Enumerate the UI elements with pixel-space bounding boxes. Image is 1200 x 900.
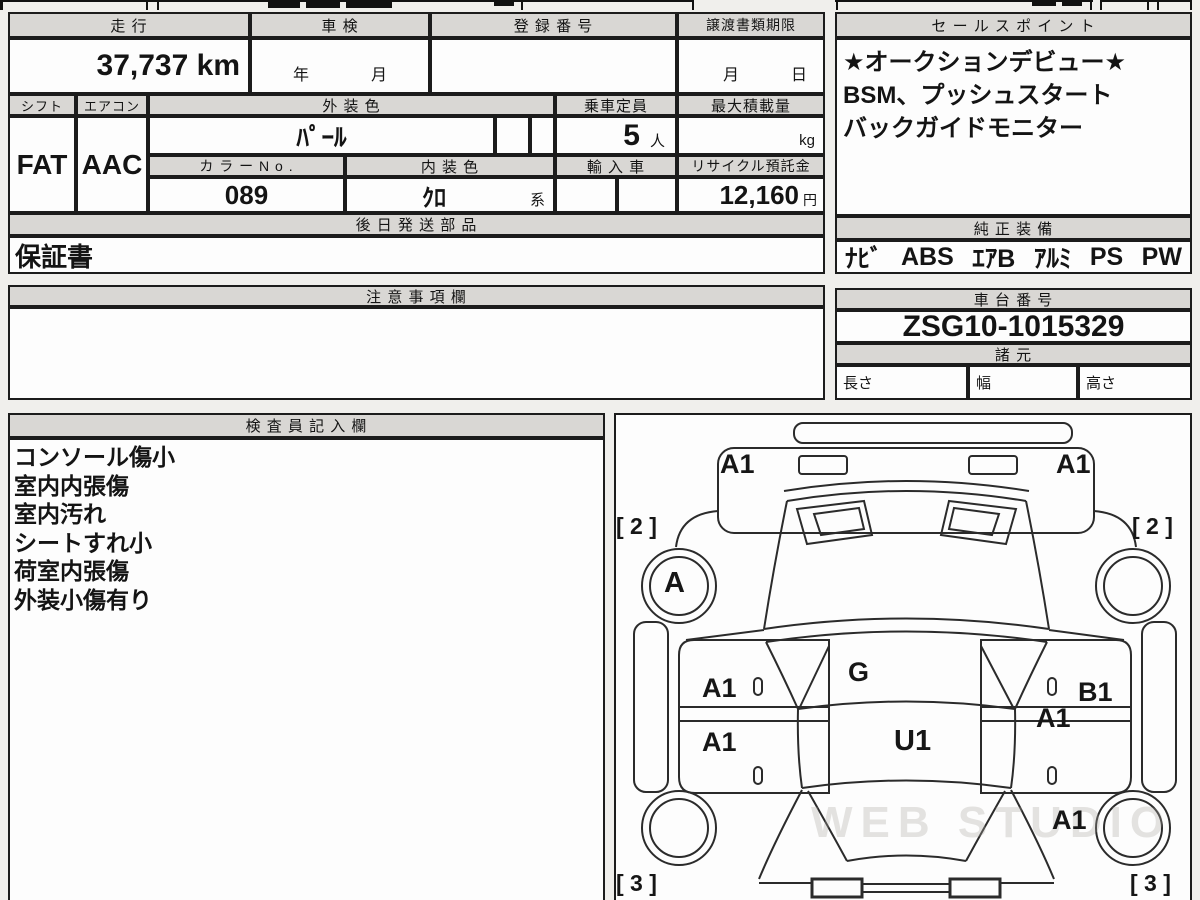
inspection-month-label: 月: [371, 61, 387, 85]
later-parts-value: 保証書: [8, 236, 825, 274]
max-load-unit: kg: [799, 132, 815, 149]
damage-label-front-door-right-2: A1: [1036, 703, 1071, 734]
exterior-color-sub-cell-2: [530, 116, 555, 155]
equipment-item: ｱﾙﾐ: [1034, 239, 1072, 275]
import-car-header: 輸 入 車: [555, 155, 677, 177]
transfer-day-label: 日: [791, 61, 807, 85]
exterior-color-sub-cell-1: [495, 116, 530, 155]
watermark: WEB STUDIO: [811, 798, 1172, 848]
inspection-value: 年 月: [250, 38, 430, 94]
mileage-header: 走 行: [8, 12, 250, 38]
capacity-number: 5: [623, 119, 640, 153]
sales-point-line: バックガイドモニター: [843, 112, 1184, 145]
capacity-unit: 人: [650, 120, 665, 151]
damage-label-front-bumper-left: A1: [720, 449, 755, 480]
equipment-item: ﾅﾋﾞ: [845, 239, 883, 275]
shift-value: FAT: [8, 116, 76, 213]
recycle-deposit-header: リサイクル預託金: [677, 155, 825, 177]
color-no-value: 089: [148, 177, 345, 213]
auction-sheet: 走 行 車 検 登 録 番 号 譲渡書類期限 37,737 km 年 月 月 日…: [0, 0, 1200, 900]
equipment-value: ﾅﾋﾞ ABS ｴｱB ｱﾙﾐ PS PW: [835, 240, 1192, 274]
transfer-deadline-value: 月 日: [677, 38, 825, 94]
inspector-note-line: シートすれ小: [14, 529, 599, 558]
inspector-note-line: 室内汚れ: [14, 500, 599, 529]
mileage-value: 37,737 km: [8, 38, 250, 94]
notes-box: [8, 307, 825, 400]
aircon-header: エアコン: [76, 94, 148, 116]
sales-point-line: BSM、プッシュスタート: [843, 79, 1184, 112]
notes-header: 注 意 事 項 欄: [8, 285, 825, 307]
spec-length-cell: 長さ: [835, 365, 968, 400]
shift-header: シフト: [8, 94, 76, 116]
damage-label-front-bumper-right: A1: [1056, 449, 1091, 480]
damage-label-front-door-right: B1: [1078, 677, 1113, 708]
aircon-value: AAC: [76, 116, 148, 213]
inspector-note-line: 荷室内張傷: [14, 557, 599, 586]
interior-color-header: 内 装 色: [345, 155, 555, 177]
later-parts-header: 後 日 発 送 部 品: [8, 213, 825, 236]
inspector-notes-box: コンソール傷小 室内内張傷 室内汚れ シートすれ小 荷室内張傷 外装小傷有り: [8, 438, 605, 900]
spec-width-cell: 幅: [968, 365, 1078, 400]
equipment-header: 純 正 装 備: [835, 216, 1192, 240]
damage-label-front-door-left: A1: [702, 673, 737, 704]
recycle-deposit-amount: 12,160: [719, 180, 799, 211]
transfer-deadline-header: 譲渡書類期限: [677, 12, 825, 38]
tire-grade-rear-left: [ 3 ]: [616, 870, 657, 897]
interior-color-name: ｸﾛ: [422, 178, 446, 213]
inspector-note-line: コンソール傷小: [14, 443, 599, 472]
equipment-item: PW: [1142, 243, 1182, 272]
import-car-cell-2: [617, 177, 677, 213]
interior-color-suffix: 系: [530, 181, 545, 210]
sales-points-header: セ ー ル ス ポ イ ン ト: [835, 12, 1192, 38]
spec-height-cell: 高さ: [1078, 365, 1192, 400]
exterior-color-value: ﾊﾟｰﾙ: [148, 116, 495, 155]
inspection-header: 車 検: [250, 12, 430, 38]
transfer-month-label: 月: [723, 61, 739, 85]
damage-label-rear-fender-right: A1: [1052, 805, 1087, 836]
recycle-deposit-unit: 円: [803, 180, 817, 210]
chassis-value: ZSG10-1015329: [835, 310, 1192, 343]
color-no-header: カ ラ ー N o .: [148, 155, 345, 177]
damage-label-roof: U1: [894, 725, 931, 758]
equipment-item: ｴｱB: [972, 239, 1015, 275]
tire-grade-rear-right: [ 3 ]: [1130, 870, 1171, 897]
damage-label-front-wheel-left: A: [664, 567, 685, 600]
specs-header: 諸 元: [835, 343, 1192, 365]
chassis-header: 車 台 番 号: [835, 288, 1192, 310]
damage-label-cowl: G: [848, 657, 869, 688]
max-load-value: kg: [677, 116, 825, 155]
exterior-color-header: 外 装 色: [148, 94, 555, 116]
inspector-note-line: 外装小傷有り: [14, 586, 599, 615]
tire-grade-front-left: [ 2 ]: [616, 513, 657, 540]
inspector-note-line: 室内内張傷: [14, 472, 599, 501]
interior-color-value: ｸﾛ 系: [345, 177, 555, 213]
sales-point-line: ★オークションデビュー★: [843, 46, 1184, 79]
damage-label-rear-door-left: A1: [702, 727, 737, 758]
equipment-item: PS: [1090, 243, 1123, 272]
recycle-deposit-value: 12,160 円: [677, 177, 825, 213]
inspection-year-label: 年: [293, 61, 309, 85]
max-load-header: 最大積載量: [677, 94, 825, 116]
sales-points-box: ★オークションデビュー★ BSM、プッシュスタート バックガイドモニター: [835, 38, 1192, 216]
import-car-cell-1: [555, 177, 617, 213]
inspector-notes-header: 検 査 員 記 入 欄: [8, 413, 605, 438]
tire-grade-front-right: [ 2 ]: [1132, 513, 1173, 540]
capacity-value: 5 人: [555, 116, 677, 155]
capacity-header: 乗車定員: [555, 94, 677, 116]
registration-value: [430, 38, 677, 94]
car-diagram-box: WEB STUDIO A1 A1 [ 2 ] [ 2 ] A G A1 A1 U…: [614, 413, 1192, 900]
equipment-item: ABS: [901, 243, 954, 272]
registration-header: 登 録 番 号: [430, 12, 677, 38]
